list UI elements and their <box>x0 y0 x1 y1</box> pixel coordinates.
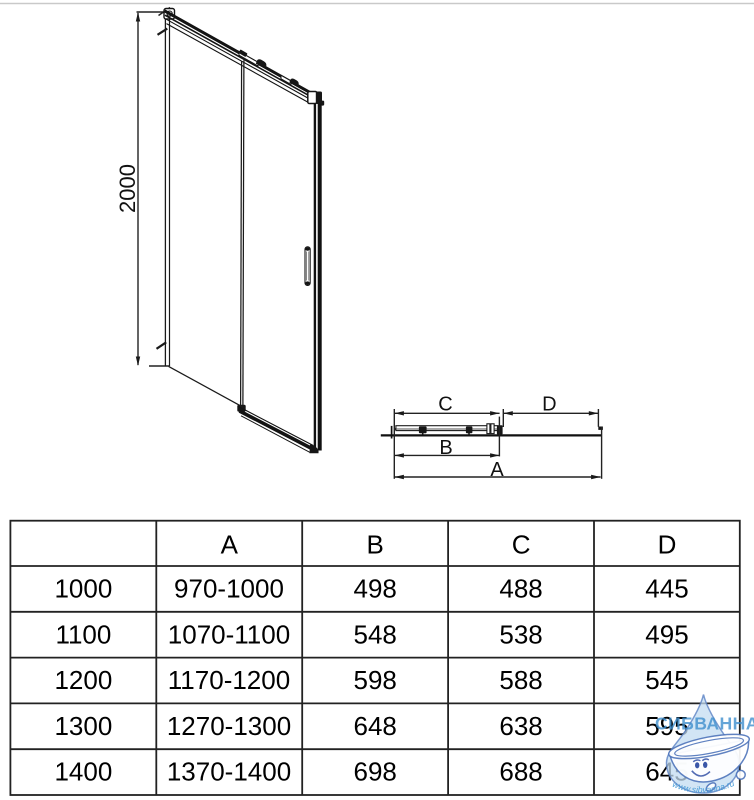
svg-text:СИБВАННА: СИБВАННА <box>655 713 754 733</box>
svg-text:1000: 1000 <box>54 574 112 604</box>
svg-text:1170-1200: 1170-1200 <box>168 665 290 695</box>
svg-text:2000: 2000 <box>115 164 140 213</box>
svg-text:538: 538 <box>499 619 542 649</box>
svg-text:1370-1400: 1370-1400 <box>167 757 291 787</box>
svg-text:548: 548 <box>354 619 397 649</box>
svg-text:B: B <box>439 437 452 459</box>
svg-text:545: 545 <box>645 665 688 695</box>
svg-text:445: 445 <box>645 574 688 604</box>
svg-text:D: D <box>658 530 677 560</box>
svg-text:638: 638 <box>499 711 542 741</box>
svg-text:B: B <box>367 530 384 560</box>
svg-text:648: 648 <box>354 711 397 741</box>
svg-text:598: 598 <box>354 665 397 695</box>
svg-text:688: 688 <box>499 757 542 787</box>
svg-text:698: 698 <box>354 757 397 787</box>
svg-text:A: A <box>221 530 239 560</box>
svg-text:A: A <box>490 459 504 481</box>
svg-text:1070-1100: 1070-1100 <box>168 619 290 649</box>
svg-text:1400: 1400 <box>54 757 112 787</box>
svg-text:1100: 1100 <box>55 619 111 649</box>
svg-text:488: 488 <box>499 574 542 604</box>
svg-text:588: 588 <box>499 665 542 695</box>
svg-text:495: 495 <box>645 619 688 649</box>
svg-text:C: C <box>512 530 531 560</box>
svg-text:970-1000: 970-1000 <box>174 574 284 604</box>
svg-text:1300: 1300 <box>54 711 112 741</box>
svg-text:D: D <box>542 394 556 416</box>
svg-text:498: 498 <box>354 574 397 604</box>
svg-text:1200: 1200 <box>54 665 112 695</box>
svg-text:C: C <box>438 394 452 416</box>
svg-text:1270-1300: 1270-1300 <box>167 711 291 741</box>
